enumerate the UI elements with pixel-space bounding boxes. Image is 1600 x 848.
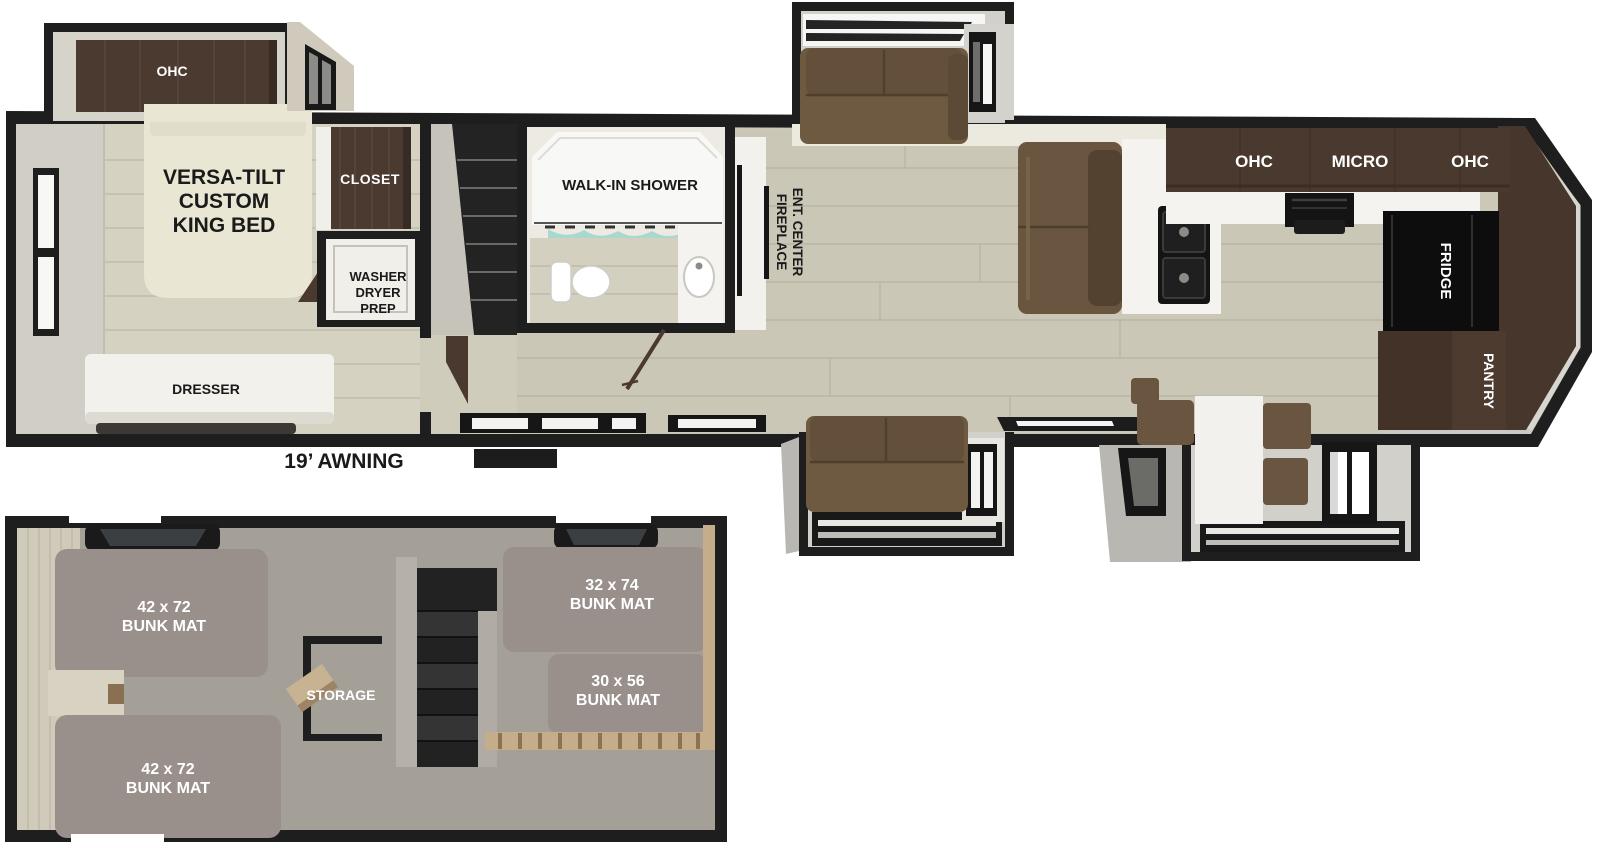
svg-text:DRYER: DRYER [355,285,401,300]
svg-text:BUNK MAT: BUNK MAT [576,692,660,709]
svg-text:19’ AWNING: 19’ AWNING [284,450,403,473]
svg-text:ENT. CENTER: ENT. CENTER [790,188,805,277]
svg-text:BUNK MAT: BUNK MAT [122,618,206,635]
svg-text:BUNK MAT: BUNK MAT [126,780,210,797]
svg-text:WASHER: WASHER [349,269,407,284]
svg-text:DRESSER: DRESSER [172,381,240,397]
svg-text:FIREPLACE: FIREPLACE [774,194,789,271]
svg-text:OHC: OHC [156,63,187,79]
svg-text:42 x 72: 42 x 72 [137,599,190,616]
svg-text:OHC: OHC [1235,152,1273,171]
svg-text:CUSTOM: CUSTOM [179,190,270,213]
svg-text:32 x 74: 32 x 74 [585,577,638,594]
svg-text:MICRO: MICRO [1332,152,1389,171]
svg-text:OHC: OHC [1451,152,1489,171]
svg-text:PREP: PREP [360,301,396,316]
svg-text:30 x 56: 30 x 56 [591,673,644,690]
svg-text:STORAGE: STORAGE [307,687,376,703]
svg-text:CLOSET: CLOSET [340,171,400,187]
svg-text:BUNK MAT: BUNK MAT [570,596,654,613]
svg-text:VERSA-TILT: VERSA-TILT [163,166,285,189]
svg-text:WALK-IN SHOWER: WALK-IN SHOWER [562,177,698,194]
svg-text:FRIDGE: FRIDGE [1437,243,1454,300]
svg-text:KING BED: KING BED [173,214,276,237]
svg-text:PANTRY: PANTRY [1481,353,1497,410]
svg-text:42 x 72: 42 x 72 [141,761,194,778]
